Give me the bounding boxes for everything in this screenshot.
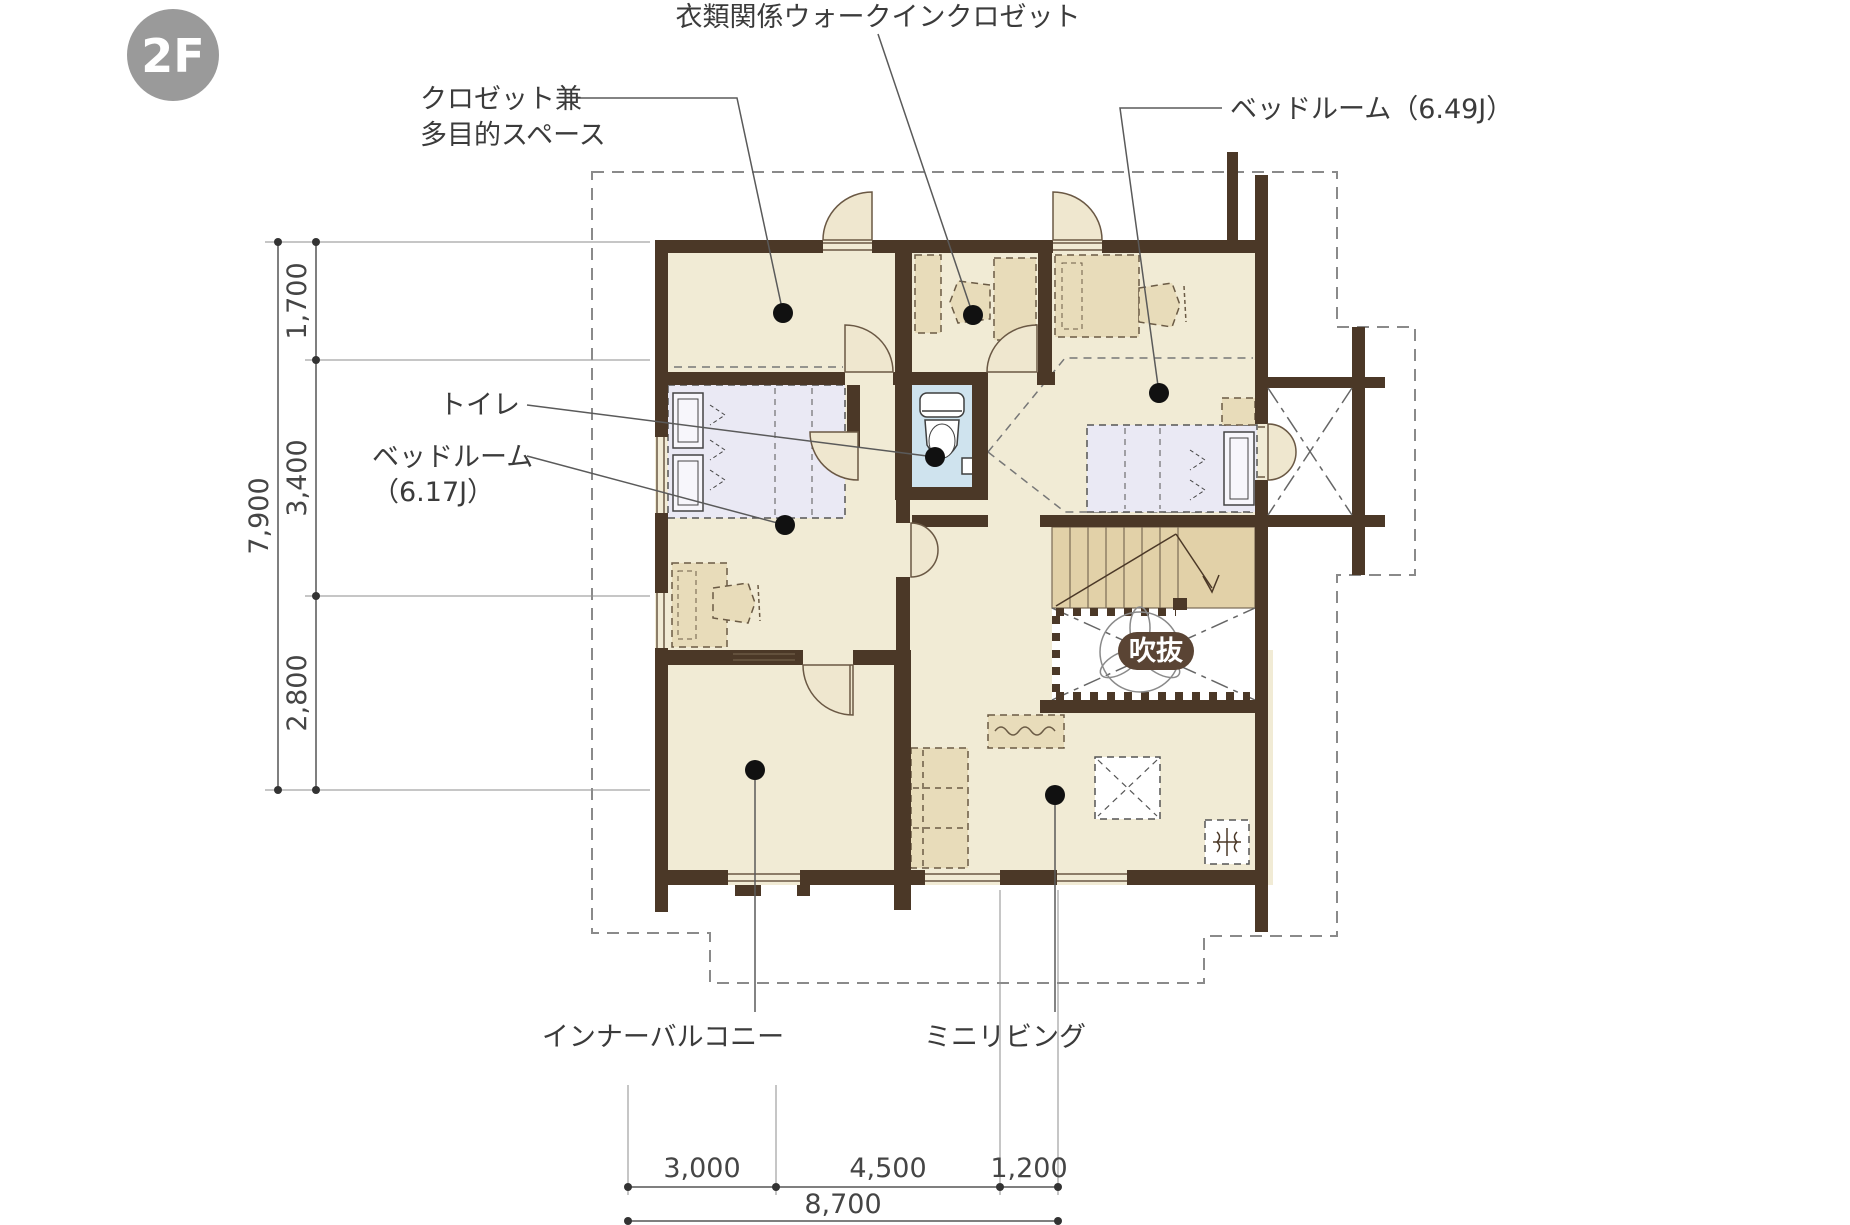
- door-top-right: [1053, 192, 1102, 240]
- void-label: 吹抜: [1129, 636, 1184, 667]
- dim-1700: 1,700: [282, 262, 313, 339]
- dim-3000: 3,000: [663, 1153, 740, 1184]
- door-catwalk: [1268, 424, 1296, 480]
- floor-badge: 2F: [127, 9, 219, 101]
- sofa: [911, 748, 968, 868]
- dot-bedroom617: [775, 515, 795, 535]
- bedroom617-label-2: （6.17J）: [372, 477, 494, 508]
- tv-board: [988, 715, 1064, 748]
- bedroom617-label-1: ベッドルーム: [372, 442, 533, 473]
- dim-1200: 1,200: [990, 1153, 1067, 1184]
- nightstand: [1222, 398, 1255, 425]
- wic-label: 衣類関係ウォークインクロゼット: [676, 2, 1081, 33]
- dot-bedroom649: [1149, 383, 1169, 403]
- door-top-left: [823, 192, 872, 240]
- dim-8700: 8,700: [804, 1189, 881, 1220]
- living-table: [1095, 757, 1160, 819]
- floorplan-drawing: 吹抜: [0, 0, 1850, 1225]
- bottom-dimensions: 3,000 4,500 1,200 8,700: [624, 890, 1068, 1225]
- bedroom649-label: ベッドルーム（6.49J）: [1230, 94, 1513, 125]
- mini-living-label: ミニリビング: [924, 1022, 1086, 1053]
- dot-toilet: [925, 447, 945, 467]
- dim-3400: 3,400: [282, 439, 313, 516]
- inner-balcony-label: インナーバルコニー: [542, 1022, 784, 1053]
- dot-balcony: [745, 760, 765, 780]
- dim-2800: 2,800: [282, 654, 313, 731]
- dot-living: [1045, 785, 1065, 805]
- dim-7900: 7,900: [244, 477, 275, 554]
- dim-4500: 4,500: [849, 1153, 926, 1184]
- stairs-floor: [1052, 527, 1255, 608]
- closet-label-1: クロゼット兼: [420, 84, 582, 115]
- plant: [1205, 820, 1249, 864]
- floorplan-page: 吹抜: [0, 0, 1850, 1225]
- closet-label-2: 多目的スペース: [420, 120, 606, 151]
- toilet-label: トイレ: [439, 390, 520, 421]
- floor-badge-text: 2F: [141, 29, 204, 83]
- dot-wic: [963, 305, 983, 325]
- bed-649: [1087, 425, 1257, 512]
- left-dimensions: 1,700 3,400 2,800 7,900: [244, 238, 650, 794]
- dot-closet: [773, 303, 793, 323]
